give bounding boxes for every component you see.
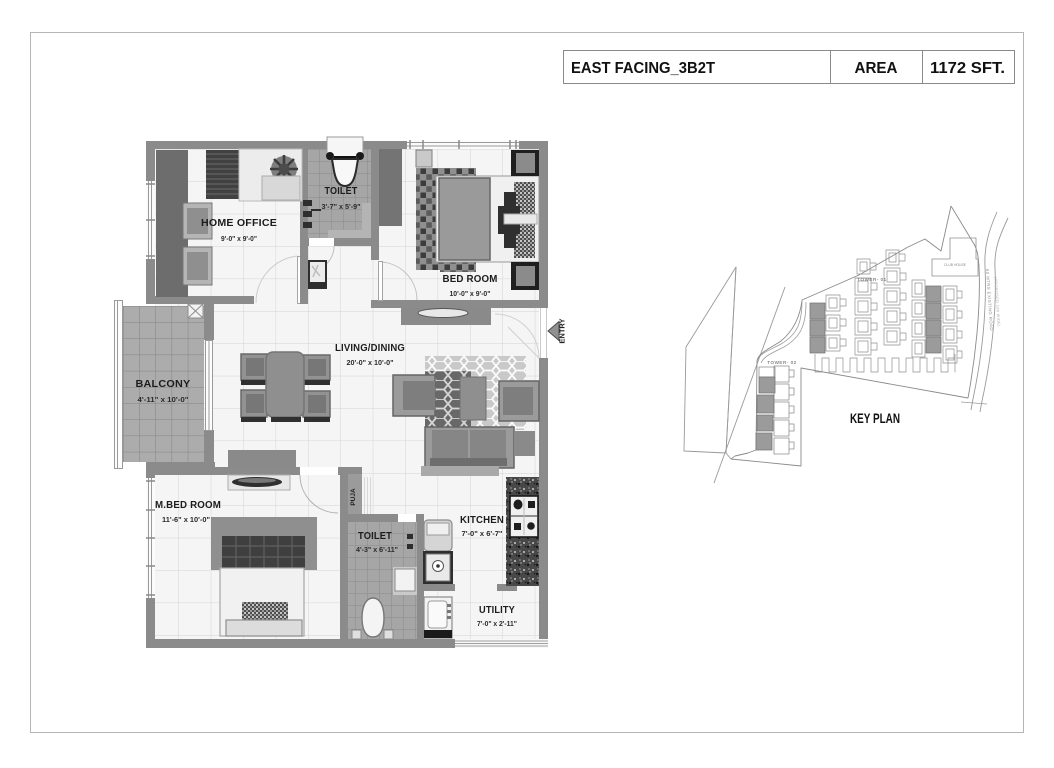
svg-text:CLUB HOUSE: CLUB HOUSE <box>944 263 967 267</box>
svg-text:HOME OFFICE: HOME OFFICE <box>201 217 277 229</box>
svg-text:BED ROOM: BED ROOM <box>443 273 498 285</box>
svg-text:UTILITY: UTILITY <box>479 604 515 616</box>
svg-text:7'-0" x 2'-11": 7'-0" x 2'-11" <box>477 621 517 628</box>
svg-text:1172 SFT.: 1172 SFT. <box>930 60 1005 77</box>
svg-text:M.BED ROOM: M.BED ROOM <box>155 499 221 511</box>
svg-text:4'-11" x 10'-0": 4'-11" x 10'-0" <box>138 397 189 404</box>
svg-text:TOILET: TOILET <box>358 530 392 542</box>
svg-text:ENTRY: ENTRY <box>558 318 567 343</box>
svg-text:EAST FACING_3B2T: EAST FACING_3B2T <box>571 60 715 77</box>
svg-text:BALCONY: BALCONY <box>136 378 191 390</box>
svg-text:11'-6" x 10'-0": 11'-6" x 10'-0" <box>162 517 210 524</box>
svg-text:TOWER- 02: TOWER- 02 <box>767 360 796 365</box>
svg-text:10'-0" x 9'-0": 10'-0" x 9'-0" <box>450 291 491 298</box>
svg-text:4'-3" x 6'-11": 4'-3" x 6'-11" <box>356 547 398 554</box>
svg-text:LIVING/DINING: LIVING/DINING <box>335 342 405 354</box>
svg-text:KEY PLAN: KEY PLAN <box>850 410 900 426</box>
svg-text:20'-0" x 10'-0": 20'-0" x 10'-0" <box>347 360 394 367</box>
svg-text:TOWER- 01: TOWER- 01 <box>857 277 886 282</box>
svg-text:KITCHEN: KITCHEN <box>460 514 504 526</box>
svg-text:9'-0" x 9'-0": 9'-0" x 9'-0" <box>221 236 257 243</box>
svg-text:PUJA: PUJA <box>350 488 357 506</box>
svg-text:TOILET: TOILET <box>325 185 358 197</box>
svg-text:AREA: AREA <box>855 60 898 77</box>
svg-text:3'-7" x 5'-9": 3'-7" x 5'-9" <box>322 204 361 211</box>
svg-text:7'-0" x 6'-7": 7'-0" x 6'-7" <box>462 531 503 538</box>
